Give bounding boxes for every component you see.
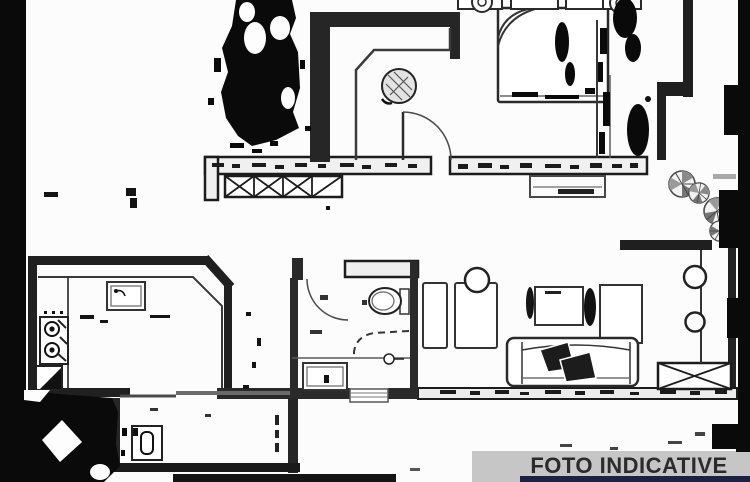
left-black-strip xyxy=(0,0,26,482)
wall-bath-left xyxy=(290,278,298,397)
wall-dressing-right-stub xyxy=(450,12,460,59)
radiator-living xyxy=(658,363,731,389)
wall-kitchen-top xyxy=(28,256,208,265)
window-smudge xyxy=(558,189,594,194)
wall-living-top-right xyxy=(620,240,712,250)
wall-terrace-right xyxy=(288,398,298,473)
round-table-icon xyxy=(382,69,416,104)
chair-rect xyxy=(423,283,447,348)
terrace-door-dashes xyxy=(275,415,279,452)
corner-unit xyxy=(36,366,62,390)
wall-bedroom-right-lower xyxy=(657,92,666,160)
stove-icon xyxy=(40,311,68,364)
banner-corner-block xyxy=(736,440,750,452)
banner-label: FOTO INDICATIVE xyxy=(530,453,727,478)
floor-plan-scan: FOTO INDICATIVE xyxy=(0,0,750,482)
bath-sink-icon xyxy=(303,363,347,390)
threshold-balcony xyxy=(713,174,736,179)
wall-terrace-bottom xyxy=(112,463,300,472)
wall-bath-right xyxy=(410,261,418,398)
radiator-top xyxy=(225,176,342,197)
wall-bath-bottom-right xyxy=(388,388,418,399)
window-bedroom xyxy=(530,176,605,197)
floor-plan-canvas: FOTO INDICATIVE xyxy=(0,0,750,482)
double-bed-icon xyxy=(498,8,608,102)
wall-terrace-outer xyxy=(173,474,396,482)
threshold-bath-door xyxy=(350,389,388,402)
wall-dressing-top xyxy=(310,12,458,27)
kitchen-sink-icon xyxy=(107,282,145,310)
toilet-icon xyxy=(369,288,409,314)
wall-kitchen-right xyxy=(224,285,232,395)
wall-bath-hinge-stub xyxy=(292,258,303,280)
bottom-left-blob xyxy=(24,390,127,482)
wall-bath-top xyxy=(345,261,418,277)
side-table-circle xyxy=(465,268,489,292)
wall-dressing-left xyxy=(310,12,330,162)
pillow-right xyxy=(566,0,603,9)
cabinet-rect xyxy=(600,285,642,343)
washing-machine-icon xyxy=(132,426,162,460)
sofa-icon xyxy=(507,338,638,386)
pillow-left xyxy=(511,0,558,9)
